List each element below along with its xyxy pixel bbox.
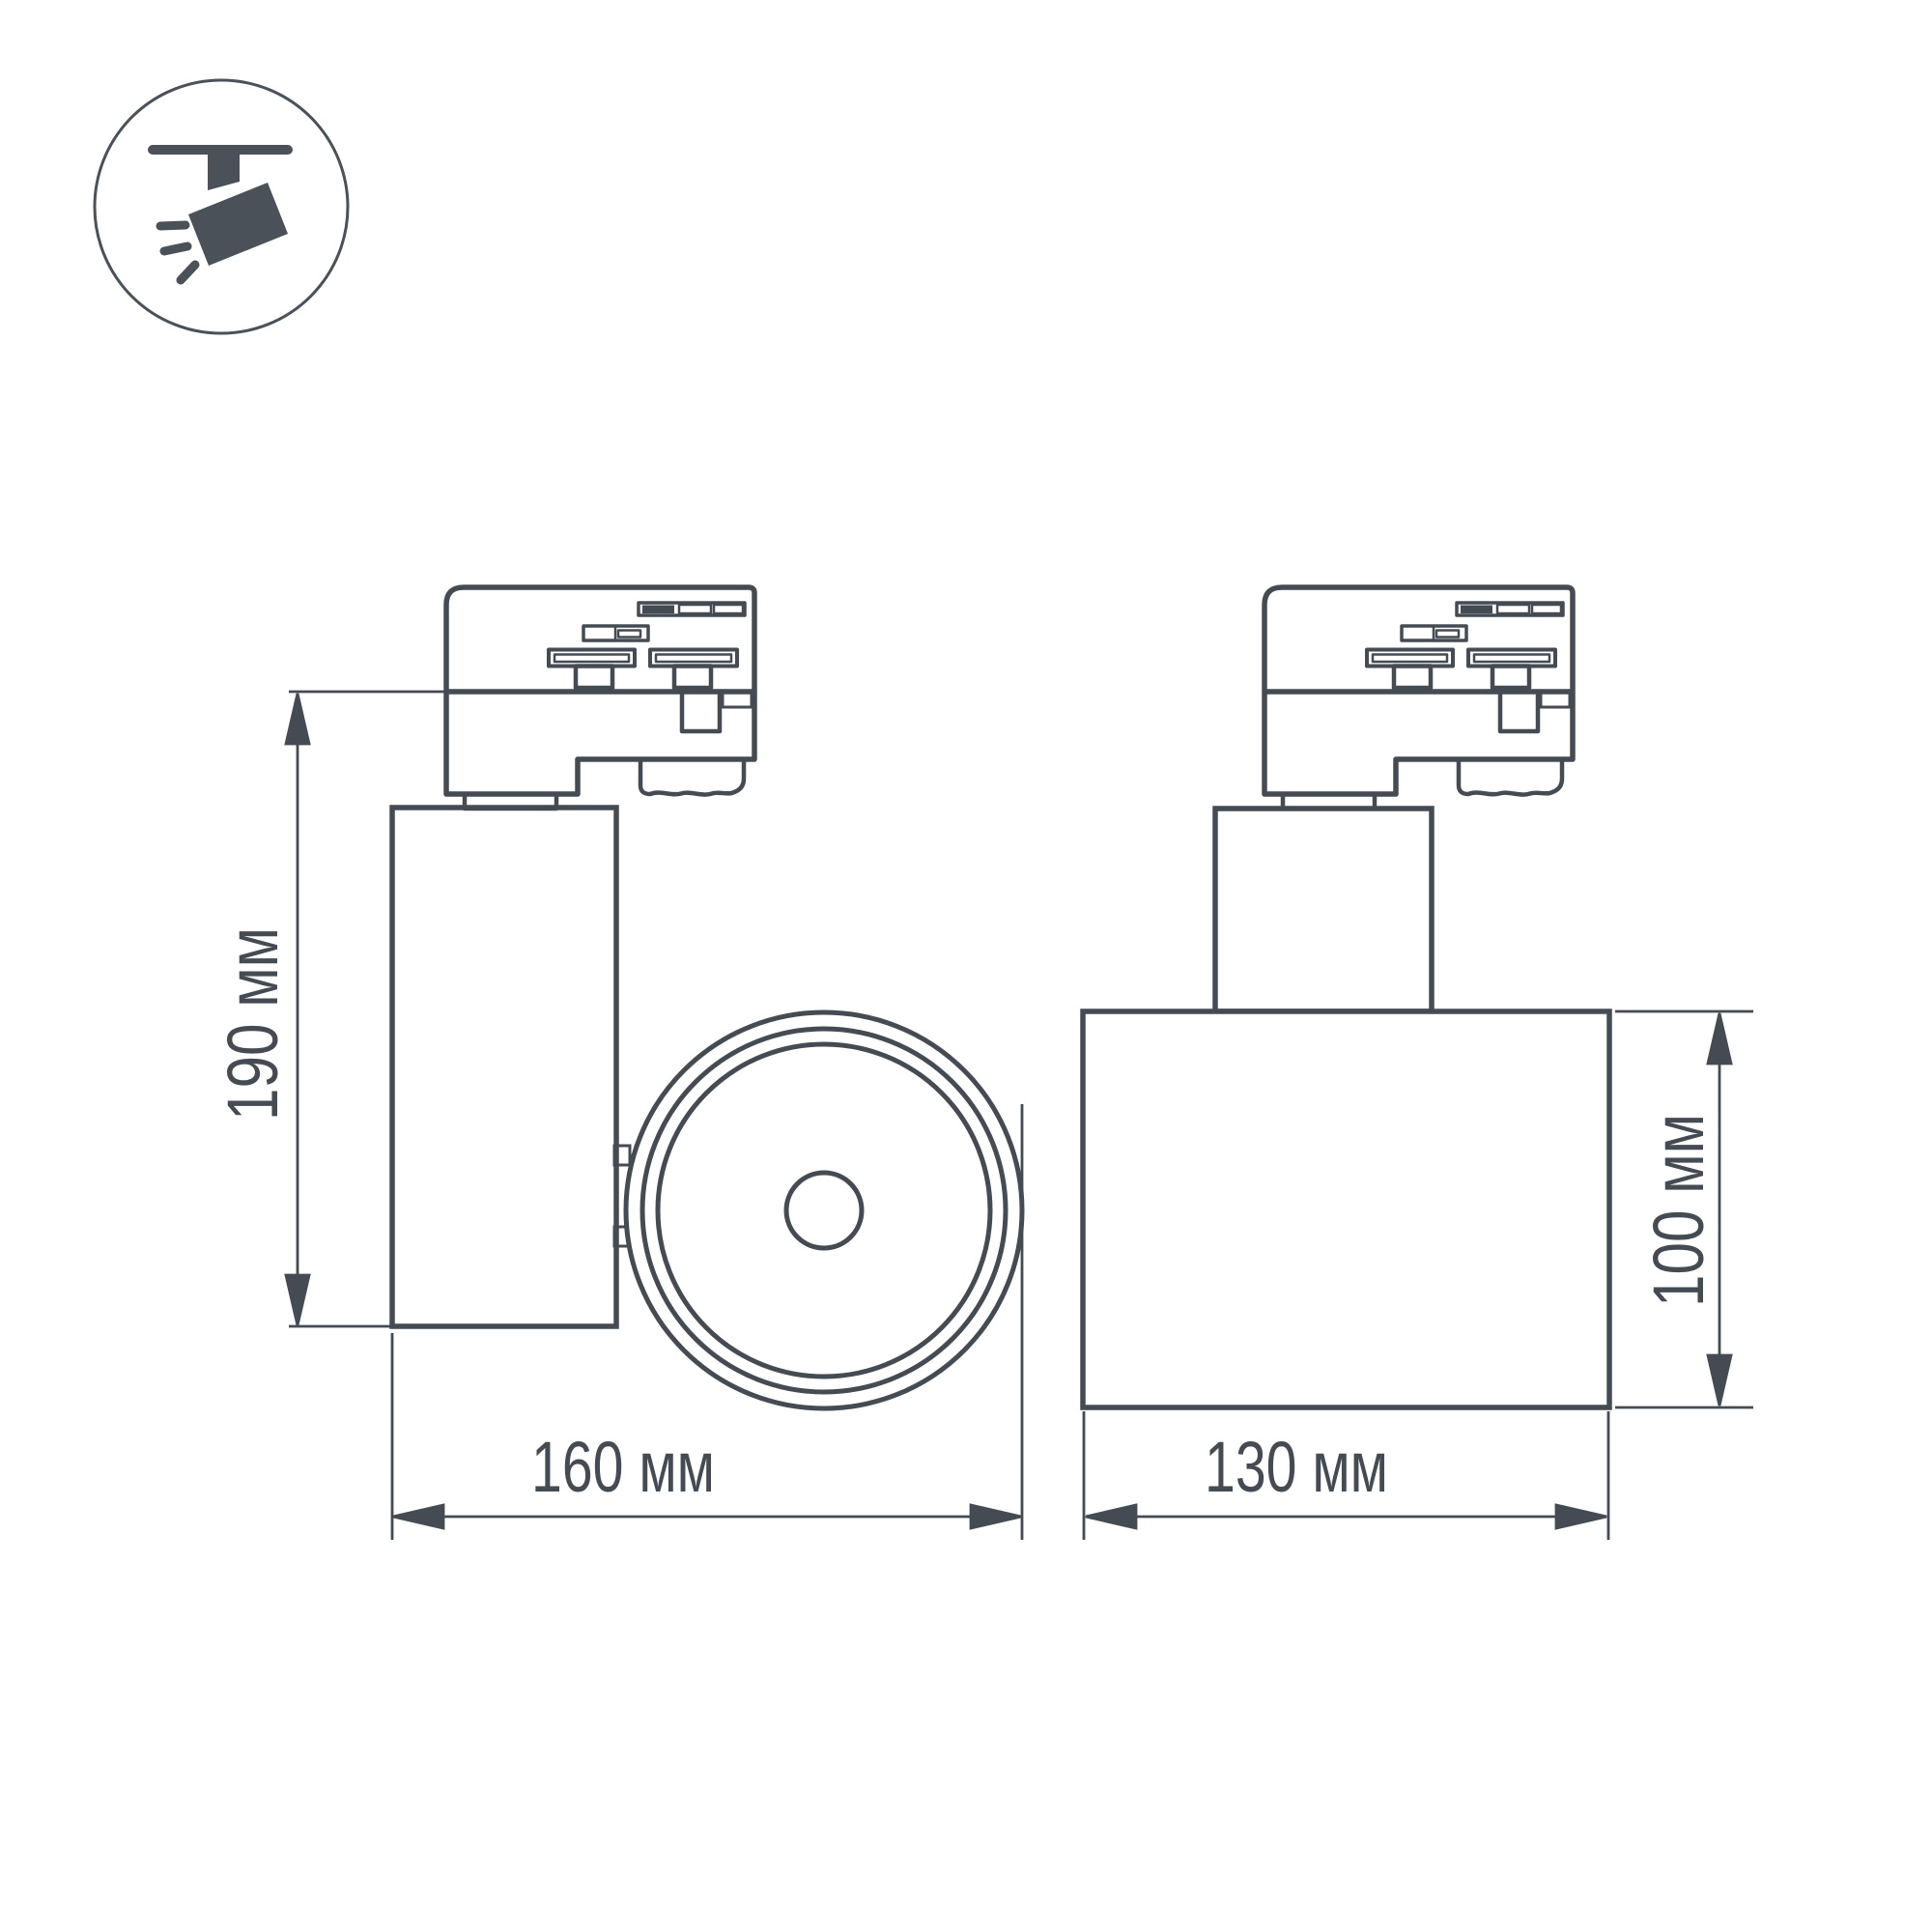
track-light-icon — [95, 80, 348, 333]
dimension-label-height: 190 мм — [213, 927, 293, 1121]
track-adapter-front — [1264, 587, 1573, 809]
front-view — [1083, 587, 1609, 1407]
lamp-body-side — [392, 808, 616, 1326]
track-adapter-side — [446, 587, 754, 809]
lamp-stem — [1215, 809, 1432, 1011]
technical-drawing: 190 мм 160 мм 130 мм 100 мм — [0, 0, 1932, 1932]
dimension-label-diameter: 100 мм — [1638, 1114, 1719, 1307]
side-view — [392, 587, 1022, 1408]
dimension-label-length: 160 мм — [531, 1427, 715, 1507]
drawing-canvas: 190 мм 160 мм 130 мм 100 мм — [0, 0, 1932, 1932]
lamp-body-front — [1083, 1011, 1609, 1407]
lens-face — [626, 1012, 1022, 1408]
dimension-label-width: 130 мм — [1205, 1427, 1388, 1507]
